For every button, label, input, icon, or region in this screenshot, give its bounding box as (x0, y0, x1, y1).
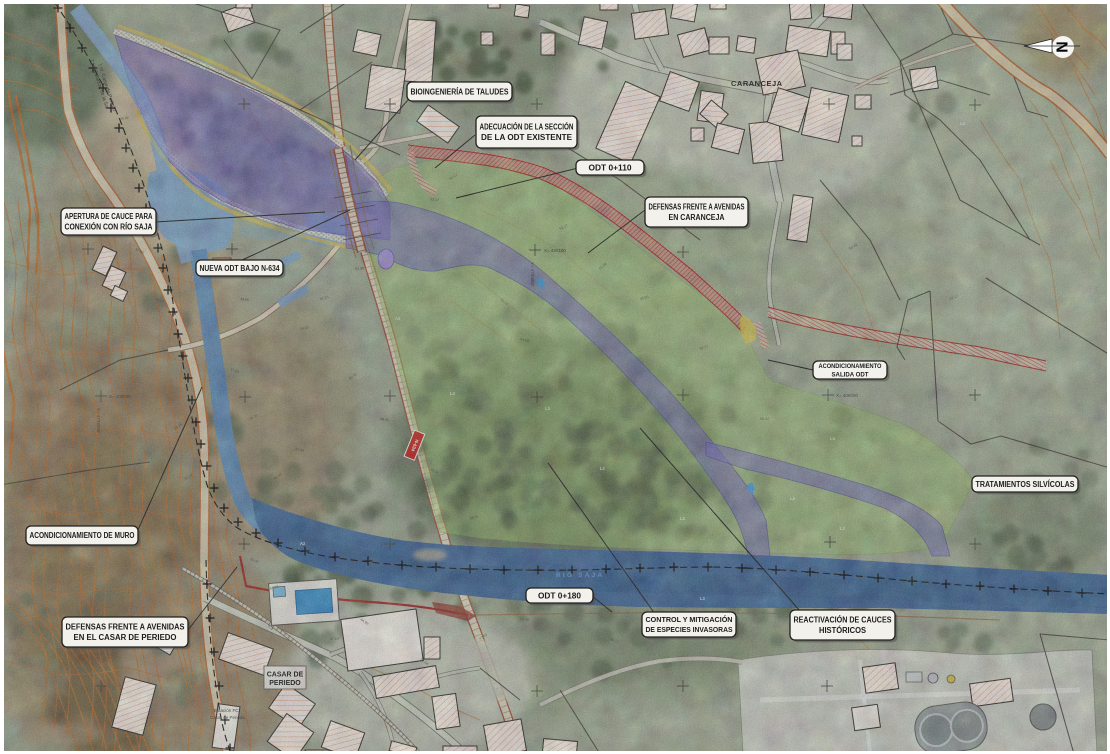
svg-text:HISTÓRICOS: HISTÓRICOS (819, 626, 866, 635)
svg-text:CONEXIÓN CON RÍO SAJA: CONEXIÓN CON RÍO SAJA (65, 223, 153, 232)
svg-text:ODT 0+180: ODT 0+180 (538, 591, 582, 600)
svg-text:CONTROL Y MITIGACIÓN: CONTROL Y MITIGACIÓN (646, 615, 733, 624)
svg-text:ODT 0+110: ODT 0+110 (589, 163, 633, 172)
svg-text:DEFENSAS FRENTE A AVENIDAS: DEFENSAS FRENTE A AVENIDAS (649, 203, 745, 212)
svg-text:TRATAMIENTOS SILVÍCOLAS: TRATAMIENTOS SILVÍCOLAS (976, 480, 1076, 489)
svg-text:N: N (1053, 41, 1070, 53)
svg-text:DE LA ODT EXISTENTE: DE LA ODT EXISTENTE (481, 133, 573, 142)
svg-text:BIOINGENIERÍA DE TALUDES: BIOINGENIERÍA DE TALUDES (411, 87, 510, 96)
svg-text:EN EL CASAR DE PERIEDO: EN EL CASAR DE PERIEDO (74, 633, 177, 642)
svg-text:REACTIVACIÓN DE CAUCES: REACTIVACIÓN DE CAUCES (794, 616, 892, 625)
svg-text:NUEVA ODT BAJO N-634: NUEVA ODT BAJO N-634 (200, 264, 280, 273)
svg-text:ACONDICIONAMIENTO: ACONDICIONAMIENTO (819, 363, 882, 370)
svg-text:DEFENSAS FRENTE A AVENIDAS: DEFENSAS FRENTE A AVENIDAS (66, 623, 185, 632)
svg-text:ACONDICIONAMIENTO DE MURO: ACONDICIONAMIENTO DE MURO (30, 531, 135, 540)
svg-text:EN CARANCEJA: EN CARANCEJA (669, 213, 725, 222)
svg-text:SALIDA ODT: SALIDA ODT (832, 372, 869, 379)
svg-text:APERTURA DE CAUCE PARA: APERTURA DE CAUCE PARA (65, 212, 153, 221)
svg-text:DE ESPECIES INVASORAS: DE ESPECIES INVASORAS (646, 625, 733, 634)
svg-text:ADECUACIÓN DE LA SECCIÓN: ADECUACIÓN DE LA SECCIÓN (480, 123, 574, 132)
